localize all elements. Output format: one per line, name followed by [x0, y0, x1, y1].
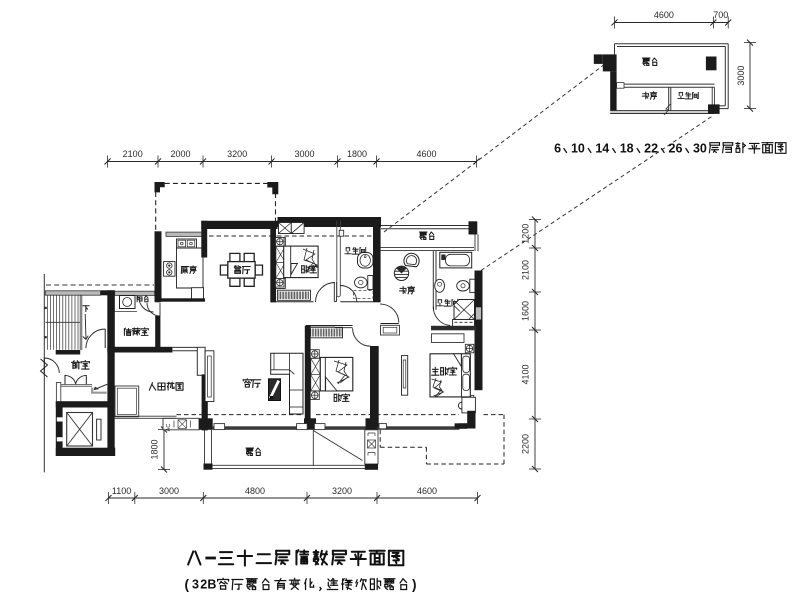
svg-text:AC: AC — [166, 424, 172, 432]
svg-text:3: 3 — [192, 578, 199, 592]
svg-text:3000: 3000 — [736, 66, 746, 86]
svg-text:3200: 3200 — [227, 149, 247, 159]
svg-text:1800: 1800 — [150, 439, 160, 459]
svg-text:1800: 1800 — [347, 149, 367, 159]
svg-text:4600: 4600 — [654, 10, 674, 20]
svg-text:4600: 4600 — [417, 486, 437, 496]
svg-text:14: 14 — [595, 142, 609, 156]
svg-text:4800: 4800 — [245, 486, 265, 496]
svg-text:2100: 2100 — [521, 260, 531, 280]
svg-text:2: 2 — [200, 578, 207, 592]
svg-text:22: 22 — [644, 142, 658, 156]
svg-text:30: 30 — [693, 142, 707, 156]
svg-text:4100: 4100 — [521, 364, 531, 384]
svg-text:4600: 4600 — [416, 149, 436, 159]
svg-text:(: ( — [184, 577, 189, 592]
svg-text:2200: 2200 — [521, 434, 531, 454]
svg-text:10: 10 — [571, 142, 585, 156]
svg-text:1200: 1200 — [521, 224, 531, 244]
svg-text:3000: 3000 — [159, 486, 179, 496]
svg-text:2000: 2000 — [170, 149, 190, 159]
svg-text:1600: 1600 — [521, 301, 531, 321]
svg-text:): ) — [412, 577, 417, 592]
svg-text:B: B — [207, 578, 216, 592]
svg-text:3000: 3000 — [294, 149, 314, 159]
svg-text:700: 700 — [713, 10, 728, 20]
svg-text:26: 26 — [669, 142, 683, 156]
svg-text:2100: 2100 — [123, 149, 143, 159]
svg-text:18: 18 — [620, 142, 634, 156]
svg-text:3200: 3200 — [332, 486, 352, 496]
svg-text:1100: 1100 — [112, 486, 131, 496]
svg-text:6: 6 — [554, 142, 561, 156]
